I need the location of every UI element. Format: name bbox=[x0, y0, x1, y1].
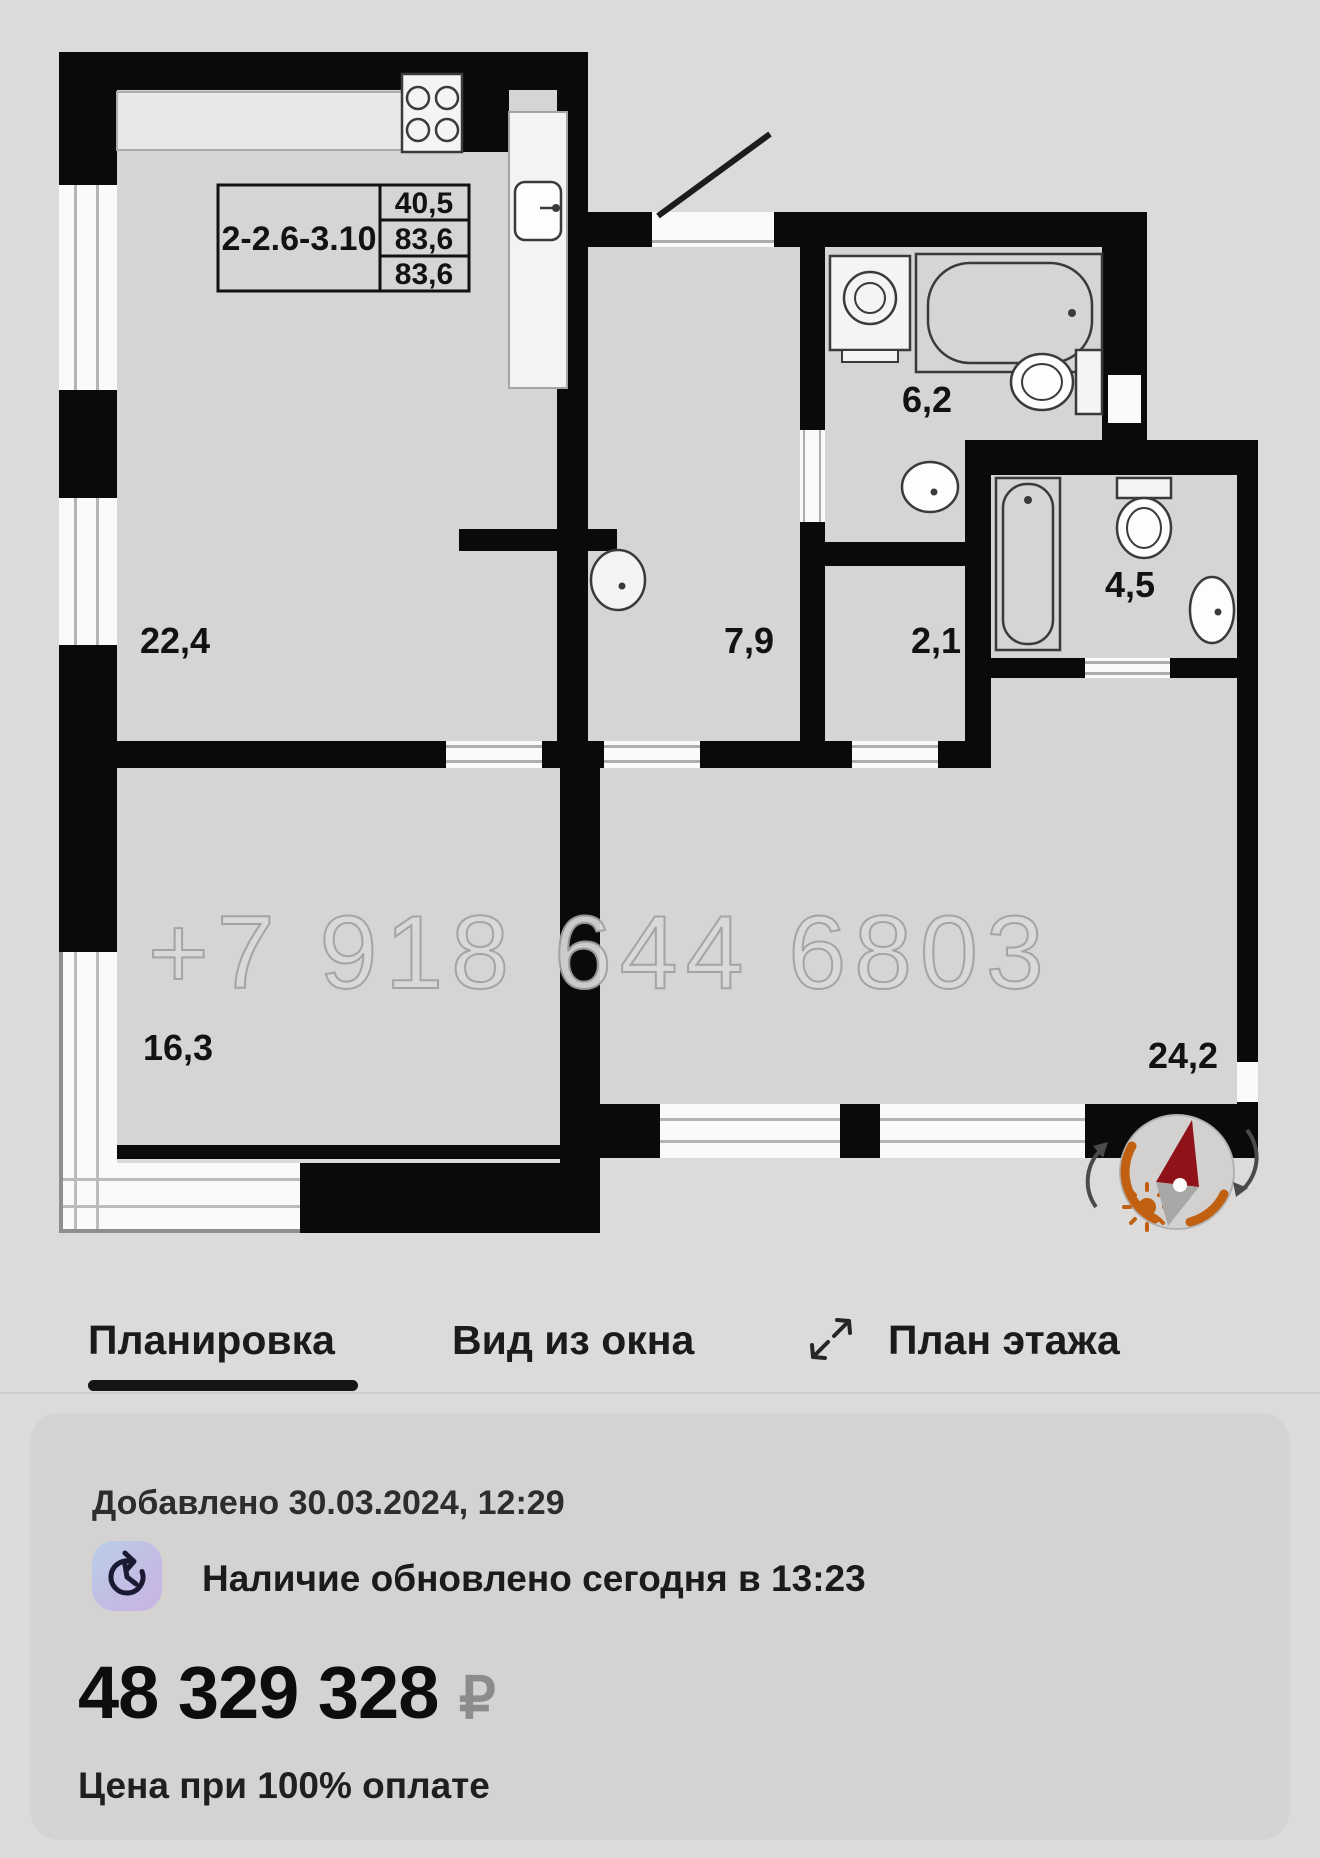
unit-label-box: 2-2.6-3.10 40,5 83,6 83,6 bbox=[218, 185, 469, 291]
price-row: 48 329 328 ₽ bbox=[78, 1655, 496, 1731]
stove-icon bbox=[402, 74, 462, 152]
tab-planirovka[interactable]: Планировка bbox=[88, 1318, 335, 1362]
floorplan-svg: 2-2.6-3.10 40,5 83,6 83,6 22,4 7,9 6,2 2… bbox=[0, 0, 1320, 1310]
toilet-icon bbox=[1011, 350, 1102, 414]
price-note: Цена при 100% оплате bbox=[78, 1765, 490, 1807]
room-label-bathroom: 6,2 bbox=[902, 379, 952, 420]
media-tabbar: Планировка Вид из окна План этажа bbox=[0, 1300, 1320, 1413]
availability-status: Наличие обновлено сегодня в 13:23 bbox=[202, 1559, 866, 1599]
unit-area-2: 83,6 bbox=[395, 223, 453, 256]
kitchen-cabinet bbox=[509, 112, 567, 388]
room-label-hallway: 7,9 bbox=[724, 620, 774, 661]
tabbar-divider bbox=[0, 1392, 1320, 1394]
washing-machine-icon bbox=[830, 256, 910, 362]
room-label-bedroom: 16,3 bbox=[143, 1027, 213, 1068]
floorplan-image[interactable]: 2-2.6-3.10 40,5 83,6 83,6 22,4 7,9 6,2 2… bbox=[0, 0, 1320, 1310]
bathroom-sink-icon bbox=[902, 462, 958, 512]
availability-clock-icon bbox=[92, 1541, 162, 1611]
room-label-bathroom2: 4,5 bbox=[1105, 564, 1155, 605]
unit-area-3: 83,6 bbox=[395, 258, 453, 291]
listing-screen: 2-2.6-3.10 40,5 83,6 83,6 22,4 7,9 6,2 2… bbox=[0, 0, 1320, 1858]
room-label-master: 24,2 bbox=[1148, 1035, 1218, 1076]
toilet2-icon bbox=[1117, 478, 1171, 558]
door-swing-line bbox=[658, 134, 770, 216]
tab-plan-etazha[interactable]: План этажа bbox=[888, 1318, 1120, 1362]
room-label-kitchen: 22,4 bbox=[140, 620, 210, 661]
added-date: Добавлено 30.03.2024, 12:29 bbox=[92, 1483, 565, 1523]
currency-ruble-sign: ₽ bbox=[459, 1669, 496, 1729]
price-value: 48 329 328 bbox=[78, 1655, 438, 1731]
room-label-small-hall: 2,1 bbox=[911, 620, 961, 661]
kitchen-sink-icon bbox=[515, 182, 561, 240]
expand-icon[interactable] bbox=[806, 1314, 856, 1364]
unit-area-1: 40,5 bbox=[395, 187, 453, 220]
active-tab-underline bbox=[88, 1380, 358, 1391]
hallway-sink-icon bbox=[591, 550, 645, 610]
tab-vid-iz-okna[interactable]: Вид из окна bbox=[452, 1318, 694, 1362]
watermark-phone: +7 918 644 6803 bbox=[148, 895, 1052, 1011]
sink2-icon bbox=[1190, 577, 1234, 643]
unit-id: 2-2.6-3.10 bbox=[222, 220, 377, 258]
offer-info-card: Добавлено 30.03.2024, 12:29 Наличие обно… bbox=[30, 1413, 1290, 1840]
